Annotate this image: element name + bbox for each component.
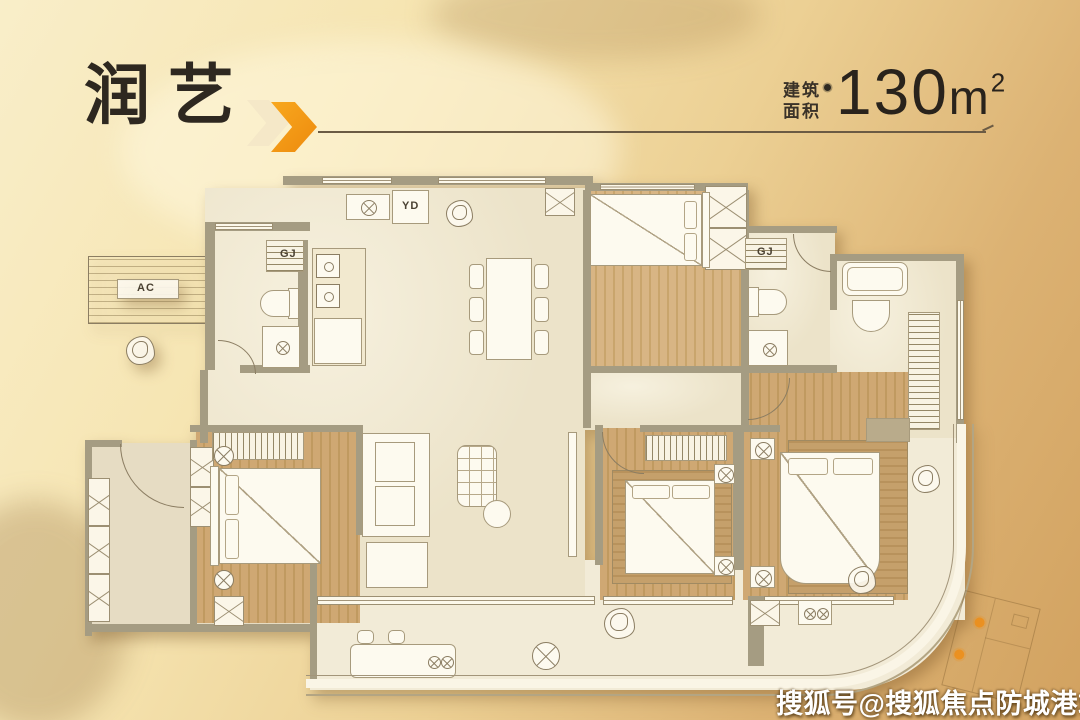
ac-label: AC [137, 282, 155, 294]
closet-box [705, 228, 747, 270]
window [957, 300, 964, 420]
shaft-right-label: GJ [757, 246, 774, 258]
closet-box [88, 478, 110, 526]
toilet-bowl [260, 290, 290, 317]
dining-chair [469, 264, 484, 289]
ceiling-lamp [214, 446, 234, 466]
site-marker [974, 616, 986, 628]
flue-label: YD [402, 200, 419, 212]
wall-segment [205, 222, 215, 370]
closet-box [214, 596, 244, 626]
dining-chair [469, 330, 484, 355]
closet-box [545, 188, 575, 216]
wall-segment [830, 254, 964, 261]
window [215, 223, 273, 230]
stove-burner [316, 284, 340, 308]
window [600, 184, 695, 190]
shaft-left-label: GJ [280, 248, 297, 260]
dining-table [486, 258, 532, 360]
closet-box [88, 526, 110, 574]
window [322, 177, 392, 184]
dining-chair [534, 330, 549, 355]
closet-box [88, 574, 110, 622]
floor-plan-poster: 润艺 建筑 面积 130m2 AC [0, 0, 1080, 720]
plant [446, 200, 473, 227]
bathtub [842, 262, 908, 296]
shower-drain [276, 341, 290, 355]
ceiling-lamp [214, 570, 234, 590]
kitchen-sink [346, 194, 390, 220]
sink-drain [361, 200, 377, 216]
plant [126, 336, 155, 365]
corridor-floor [583, 368, 748, 430]
dining-chair [534, 297, 549, 322]
ac-platform: AC [88, 256, 208, 324]
shower-drain [763, 343, 777, 357]
site-marker [953, 648, 965, 660]
shower-basin [262, 326, 300, 368]
bed-pillow [684, 201, 697, 229]
wall-segment [588, 366, 746, 373]
wall-segment [200, 370, 208, 443]
bed-pillow [684, 233, 697, 261]
bed-headboard [210, 466, 219, 566]
wall-segment [743, 365, 837, 373]
dining-chair [534, 264, 549, 289]
bed-pillow [225, 475, 239, 515]
bed-pillow [225, 519, 239, 559]
wall-segment [830, 258, 837, 310]
shower-basin [748, 330, 788, 366]
floor-plan: AC [0, 0, 1080, 720]
balcony-railing-inner [306, 424, 954, 676]
wall-segment [88, 440, 122, 447]
window [438, 177, 546, 184]
toilet-bowl [758, 289, 787, 315]
bed-headboard [702, 192, 710, 268]
bathtub-inner [847, 267, 903, 291]
closet-box [705, 186, 747, 228]
stove-burner [316, 254, 340, 278]
kitchen-cabinet [314, 318, 362, 364]
wardrobe [908, 312, 940, 430]
bed [590, 194, 702, 266]
dining-chair [469, 297, 484, 322]
wall-segment [85, 624, 313, 632]
wall-segment [745, 226, 837, 233]
watermark: 搜狐号@搜狐焦点防城港站 [776, 682, 1080, 720]
